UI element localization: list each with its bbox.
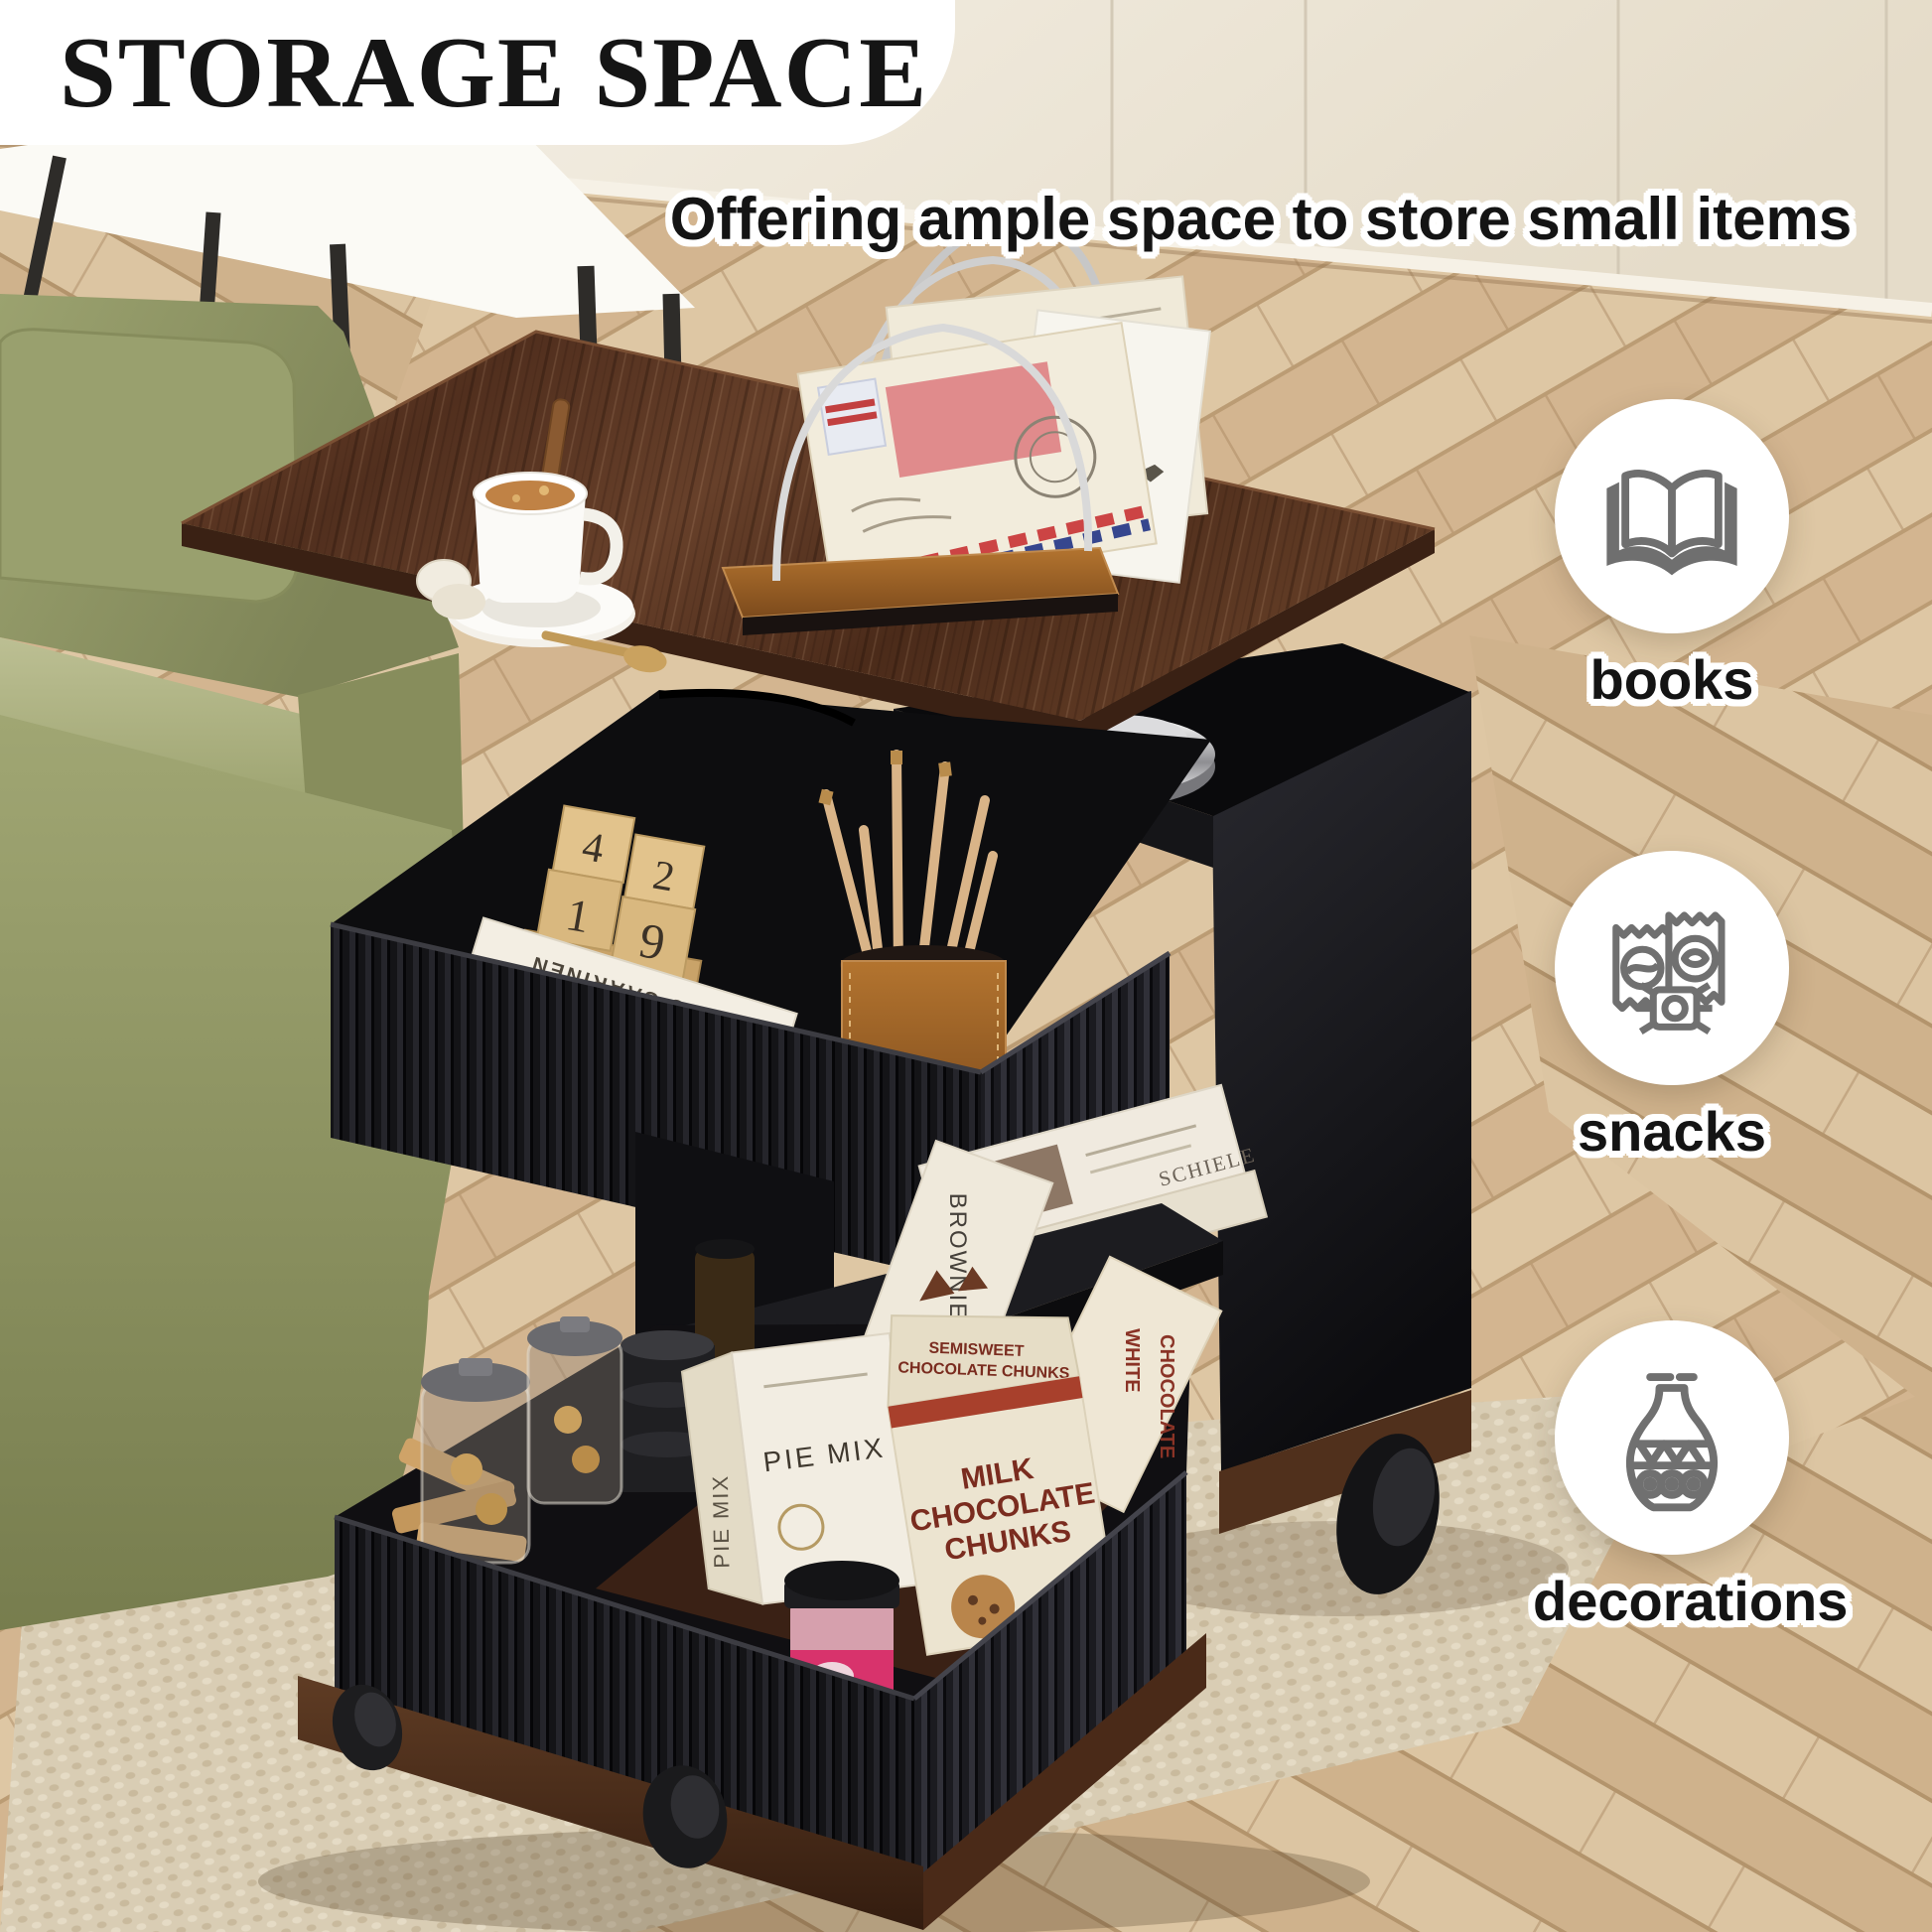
macaron (432, 584, 485, 620)
pie-box-side-label: PIE MIX (708, 1474, 735, 1569)
right-side-panel (1211, 691, 1471, 1471)
feature-label-books: books (1533, 647, 1811, 712)
snack-packets-icon (1597, 894, 1746, 1042)
subtitle: Offering ample space to store small item… (606, 185, 1916, 253)
feature-label-decorations: decorations (1533, 1569, 1811, 1633)
books-feature-circle (1555, 399, 1789, 633)
feature-snacks: snacks (1533, 851, 1811, 1164)
product-marketing-image: 4 1 2 9 february EERO SAARINEN Peter Lin… (0, 0, 1932, 1932)
open-book-icon (1597, 442, 1746, 591)
title-banner: STORAGE SPACE (0, 0, 955, 145)
page-title: STORAGE SPACE (0, 0, 955, 143)
white-box-label-1: WHITE (1121, 1328, 1143, 1392)
chunks-flap-label-1: SEMISWEET (928, 1340, 1025, 1360)
white-box-label-2: CHOCOLATE (1156, 1334, 1177, 1458)
feature-label-snacks: snacks (1533, 1099, 1811, 1164)
snacks-feature-circle (1555, 851, 1789, 1085)
decorations-feature-circle (1555, 1320, 1789, 1555)
vase-icon (1597, 1363, 1746, 1512)
feature-decorations: decorations (1533, 1320, 1811, 1633)
feature-books: books (1533, 399, 1811, 712)
